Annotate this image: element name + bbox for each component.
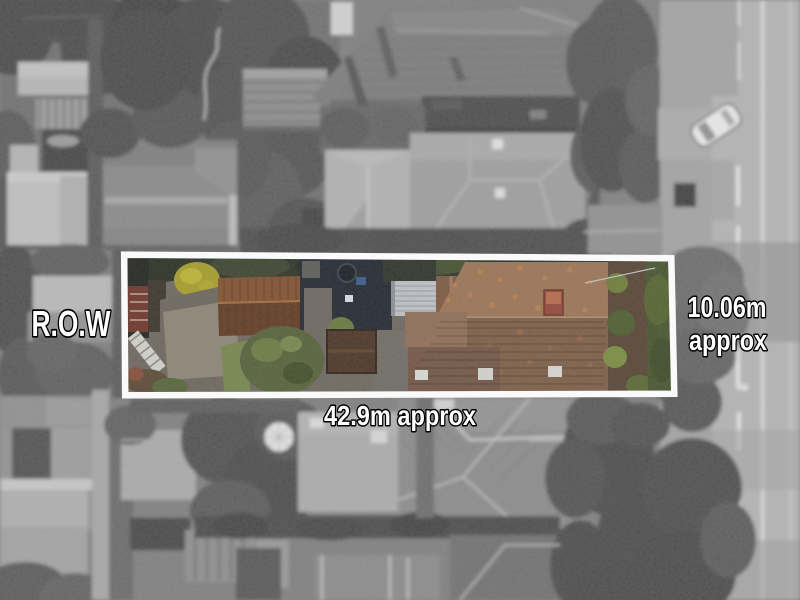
svg-text:42.9m approx: 42.9m approx	[324, 400, 476, 431]
svg-text:10.06m: 10.06m	[688, 292, 767, 324]
svg-text:R.O.W: R.O.W	[32, 303, 111, 344]
svg-text:approx: approx	[689, 325, 767, 357]
